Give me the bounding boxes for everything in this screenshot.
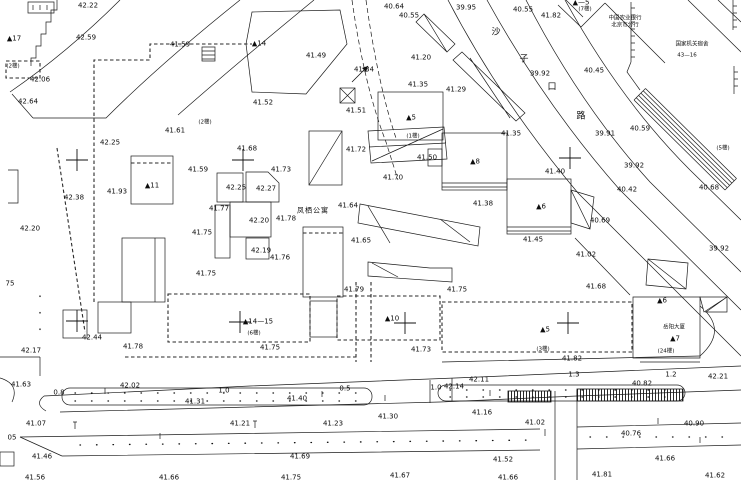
- elevation-label: 42.19: [251, 248, 271, 255]
- elevation-label: 40.42: [617, 187, 637, 194]
- elevation-label: 42.20: [20, 226, 40, 233]
- elevation-label: 41.59: [170, 42, 190, 49]
- survey-map: 42.2242.5942.0642.6442.2542.3841.9342.20…: [0, 0, 741, 480]
- elevation-label: 42.59: [76, 35, 96, 42]
- place-name-label: 43—16: [677, 53, 697, 59]
- floor-count-label: (1楼): [406, 134, 419, 140]
- road-width-label: 0.8: [53, 390, 64, 397]
- elevation-label: 40.90: [684, 421, 704, 428]
- elevation-label: 41.21: [230, 421, 250, 428]
- elevation-label: 41.63: [11, 382, 31, 389]
- elevation-label: 41.66: [655, 456, 675, 463]
- elevation-label: 42.27: [256, 186, 276, 193]
- elevation-label: 41.52: [253, 100, 273, 107]
- elevation-label: 41.49: [306, 53, 326, 60]
- floor-count-label: (5楼): [716, 146, 729, 152]
- floor-count-label: (24楼): [658, 349, 675, 355]
- elevation-label: 41.31: [185, 399, 205, 406]
- elevation-label: 40.55: [513, 7, 533, 14]
- elevation-label: 40.82: [632, 381, 652, 388]
- building-number-label: ▲5: [406, 115, 416, 122]
- elevation-label: 41.72: [346, 147, 366, 154]
- elevation-label: 41.23: [323, 421, 343, 428]
- street-name-char: 子: [519, 56, 528, 65]
- elevation-label: 41.35: [501, 131, 521, 138]
- building-number-label: ▲14—15: [243, 319, 273, 326]
- elevation-label: 39.92: [709, 246, 729, 253]
- elevation-label: 40.68: [699, 185, 719, 192]
- elevation-label: 41.82: [562, 356, 582, 363]
- elevation-label: 41.38: [473, 201, 493, 208]
- elevation-label: 41.73: [411, 347, 431, 354]
- elevation-label: 41.65: [351, 238, 371, 245]
- elevation-label: 41.20: [411, 55, 431, 62]
- building-number-label: ▲10: [385, 316, 399, 323]
- elevation-label: 39.92: [530, 71, 550, 78]
- place-name-label: 北京市分行: [611, 23, 639, 29]
- elevation-label: 41.07: [26, 421, 46, 428]
- elevation-label: 39.95: [456, 5, 476, 12]
- elevation-label: 41.78: [276, 216, 296, 223]
- building-number-label: ▲5: [540, 327, 550, 334]
- elevation-label: 42.11: [469, 377, 489, 384]
- elevation-label: 41.73: [271, 167, 291, 174]
- elevation-label: 41.56: [25, 475, 45, 480]
- elevation-label: 41.81: [592, 472, 612, 479]
- place-name-label: 中国农业银行: [608, 16, 641, 22]
- building-number-label: ▲11: [145, 183, 159, 190]
- elevation-label: 41.68: [237, 146, 257, 153]
- building-number-label: ▲7: [670, 336, 680, 343]
- elevation-label: 41.78: [123, 344, 143, 351]
- elevation-label: 40.55: [399, 13, 419, 20]
- elevation-label: 41.62: [705, 473, 725, 480]
- elevation-label: 41.75: [260, 345, 280, 352]
- building-number-label: ▲6: [536, 204, 546, 211]
- elevation-label: 41.82: [541, 13, 561, 20]
- elevation-label: 39.91: [595, 131, 615, 138]
- elevation-label: 42.17: [21, 348, 41, 355]
- building-number-label: ▲14: [252, 41, 266, 48]
- elevation-label: 40.64: [384, 4, 404, 11]
- floor-count-label: (2楼): [6, 64, 19, 70]
- building-number-label: ▲17: [7, 36, 21, 43]
- elevation-label: 42.22: [78, 3, 98, 10]
- elevation-label: 41.29: [446, 87, 466, 94]
- elevation-label: 42.14: [444, 384, 464, 391]
- elevation-label: 41.52: [493, 457, 513, 464]
- elevation-label: 41.66: [498, 475, 518, 480]
- elevation-label: 42.25: [226, 185, 246, 192]
- elevation-label: 41.76: [270, 255, 290, 262]
- street-name-char: 路: [576, 113, 585, 122]
- road-width-label: 1.3: [568, 372, 579, 379]
- elevation-label: 41.51: [346, 108, 366, 115]
- elevation-label: 41.30: [378, 414, 398, 421]
- elevation-label: 41.34: [354, 67, 374, 74]
- place-name-label: 凤栖公寓: [297, 208, 329, 215]
- elevation-label: 40.76: [621, 431, 641, 438]
- elevation-label: 41.68: [586, 284, 606, 291]
- elevation-label: 41.50: [417, 155, 437, 162]
- elevation-label: 42.25: [100, 140, 120, 147]
- elevation-label: 41.64: [338, 203, 358, 210]
- elevation-label: 41.75: [281, 475, 301, 480]
- elevation-label: 41.75: [192, 230, 212, 237]
- building-number-label: ▲8: [470, 159, 480, 166]
- elevation-label: 41.46: [32, 454, 52, 461]
- road-width-label: 0.5: [339, 386, 350, 393]
- elevation-label: 41.69: [290, 454, 310, 461]
- elevation-label: 42.06: [30, 77, 50, 84]
- elevation-label: 41.40: [287, 396, 307, 403]
- street-name-char: 口: [547, 84, 556, 93]
- elevation-label: 41.70: [383, 175, 403, 182]
- elevation-label: 42.21: [708, 374, 728, 381]
- elevation-label: 40.45: [584, 68, 604, 75]
- floor-count-label: (3楼): [536, 347, 549, 353]
- place-name-label: 岳阳大厦: [663, 325, 685, 331]
- elevation-label: 41.35: [408, 82, 428, 89]
- place-name-label: 国家机关宿舍: [675, 42, 708, 48]
- elevation-label: 42.38: [64, 195, 84, 202]
- building-number-label: ▲6: [657, 298, 667, 305]
- truncated-label: 75: [6, 281, 15, 288]
- elevation-label: 39.92: [624, 163, 644, 170]
- elevation-label: 42.20: [249, 218, 269, 225]
- elevation-label: 42.44: [82, 335, 102, 342]
- floor-count-label: (7楼): [578, 7, 591, 13]
- elevation-label: 41.59: [188, 167, 208, 174]
- elevation-label: 41.61: [165, 128, 185, 135]
- truncated-label: 05: [8, 435, 17, 442]
- road-width-label: 1.2: [665, 372, 676, 379]
- floor-count-label: (2楼): [198, 120, 211, 126]
- elevation-label: 42.02: [120, 383, 140, 390]
- elevation-label: 41.66: [159, 475, 179, 480]
- elevation-label: 41.40: [545, 169, 565, 176]
- elevation-label: 41.93: [107, 189, 127, 196]
- street-name-char: 沙: [491, 29, 500, 38]
- elevation-label: 41.67: [390, 473, 410, 480]
- road-width-label: 1.0: [218, 388, 229, 395]
- elevation-label: 41.02: [525, 420, 545, 427]
- elevation-label: 41.02: [576, 252, 596, 259]
- elevation-label: 42.64: [18, 99, 38, 106]
- road-width-label: 1.0: [430, 385, 441, 392]
- elevation-label: 41.77: [209, 206, 229, 213]
- elevation-label: 40.59: [630, 126, 650, 133]
- elevation-label: 41.75: [447, 287, 467, 294]
- elevation-label: 41.79: [344, 287, 364, 294]
- map-labels: 42.2242.5942.0642.6442.2542.3841.9342.20…: [0, 0, 741, 480]
- elevation-label: 41.45: [523, 237, 543, 244]
- elevation-label: 40.69: [590, 218, 610, 225]
- elevation-label: 41.75: [196, 271, 216, 278]
- floor-count-label: (6楼): [247, 331, 260, 337]
- elevation-label: 41.16: [472, 410, 492, 417]
